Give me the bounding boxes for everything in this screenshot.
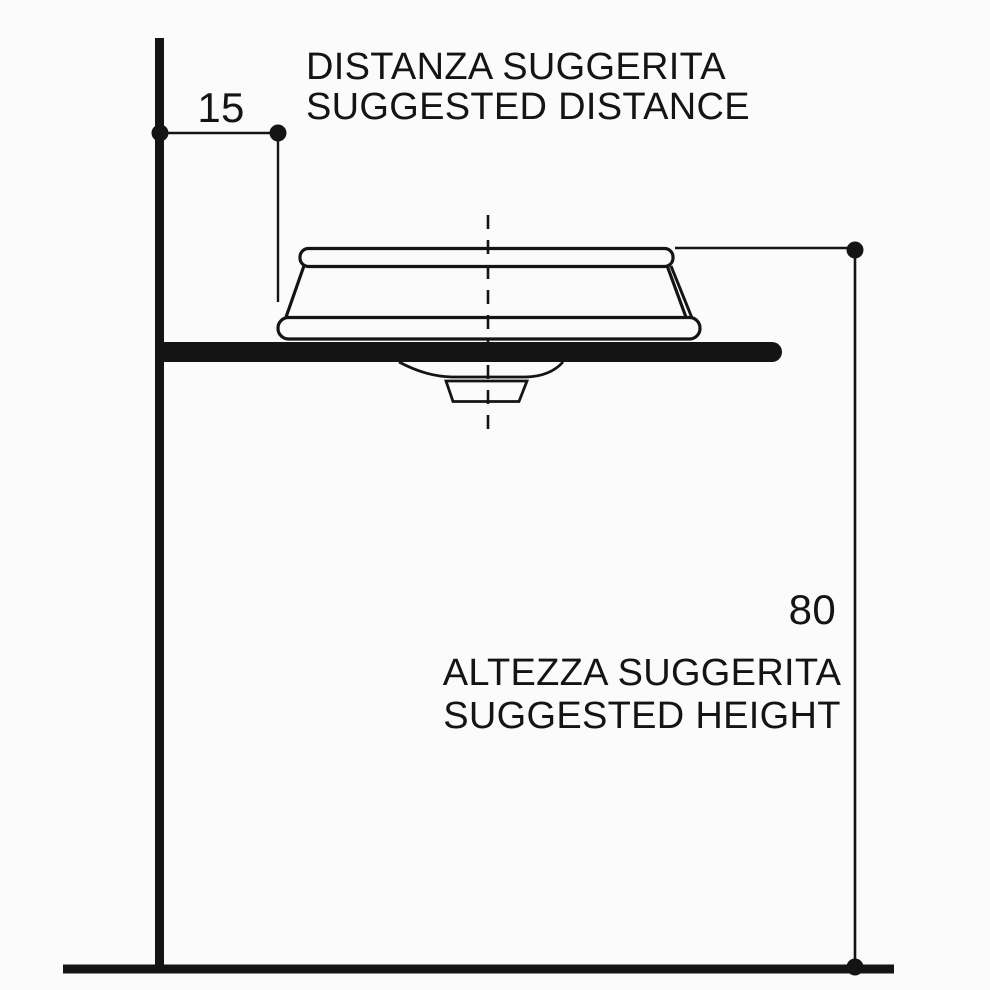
- distance-caption: DISTANZA SUGGERITASUGGESTED DISTANCE: [306, 47, 766, 127]
- drain-outlet: [446, 381, 527, 402]
- distance-caption-italian: DISTANZA SUGGERITA: [306, 46, 726, 88]
- distance-caption-english: SUGGESTED DISTANCE: [306, 86, 750, 128]
- washbasin-top-rim: [300, 249, 673, 267]
- height-caption-italian: ALTEZZA SUGGERITA: [443, 652, 842, 694]
- height-caption: ALTEZZA SUGGERITASUGGESTED HEIGHT: [420, 652, 864, 738]
- technical-drawing: [0, 0, 990, 990]
- washbasin-body: [285, 260, 687, 320]
- distance-endpoint-dot-basin: [270, 125, 287, 142]
- height-endpoint-dot-floor: [847, 959, 864, 976]
- height-value: 80: [758, 589, 836, 631]
- underside-bowl-line: [399, 362, 563, 377]
- distance-value: 15: [185, 87, 257, 129]
- distance-dimension: [152, 125, 287, 303]
- height-endpoint-dot-top: [847, 242, 864, 259]
- countertop-slab: [161, 342, 772, 362]
- washbasin-underside: [399, 362, 563, 402]
- countertop-rounded-end: [762, 342, 782, 362]
- distance-endpoint-dot-wall: [152, 125, 169, 142]
- height-caption-english: SUGGESTED HEIGHT: [443, 695, 841, 737]
- countertop-bar: [161, 342, 782, 362]
- installation-diagram: DISTANZA SUGGERITASUGGESTED DISTANCE 15 …: [0, 0, 990, 990]
